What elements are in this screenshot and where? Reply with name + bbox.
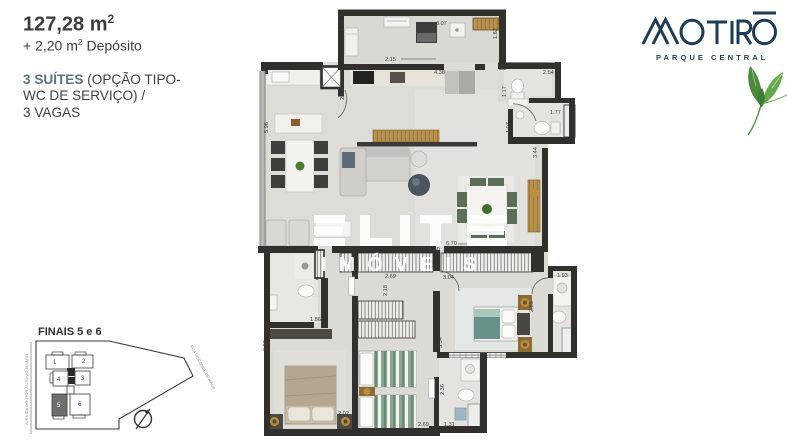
svg-text:2.18: 2.18 [383,285,389,296]
svg-text:2.54: 2.54 [543,70,554,76]
svg-text:4.38: 4.38 [434,70,445,76]
svg-text:RUA VISCONDE DE MAUA: RUA VISCONDE DE MAUA [189,344,217,390]
svg-text:2.02: 2.02 [338,411,349,417]
svg-text:3.07: 3.07 [436,21,447,27]
svg-text:1.07: 1.07 [506,122,512,133]
svg-text:AVENIDA DOUTOR ANTONIO ALVARO: AVENIDA DOUTOR ANTONIO ALVARO [24,354,29,425]
svg-text:2.86: 2.86 [529,301,535,312]
svg-text:1.17: 1.17 [502,86,508,97]
svg-text:1.62: 1.62 [493,28,499,39]
svg-text:1.52: 1.52 [339,20,345,31]
svg-text:2.36: 2.36 [440,384,446,395]
svg-text:3.57: 3.57 [354,339,360,350]
svg-text:0.80: 0.80 [429,247,440,253]
svg-text:FINAIS 5 e 6: FINAIS 5 e 6 [38,326,102,338]
svg-text:1.86: 1.86 [310,317,321,323]
svg-text:1.31: 1.31 [444,422,455,428]
svg-text:PARQUE CENTRAL: PARQUE CENTRAL [656,53,768,62]
svg-text:IMÓVEIS: IMÓVEIS [321,252,488,276]
svg-text:2.15: 2.15 [385,57,396,63]
svg-text:5.96: 5.96 [264,122,270,133]
svg-text:1.93: 1.93 [557,273,568,279]
svg-text:3.93: 3.93 [263,340,269,351]
svg-text:2.42: 2.42 [340,89,346,100]
svg-text:3.34: 3.34 [438,337,444,348]
svg-text:2.69: 2.69 [418,422,429,428]
svg-text:3.44: 3.44 [533,147,539,158]
svg-text:1.77: 1.77 [550,110,561,116]
svg-text:6.70: 6.70 [446,241,457,247]
